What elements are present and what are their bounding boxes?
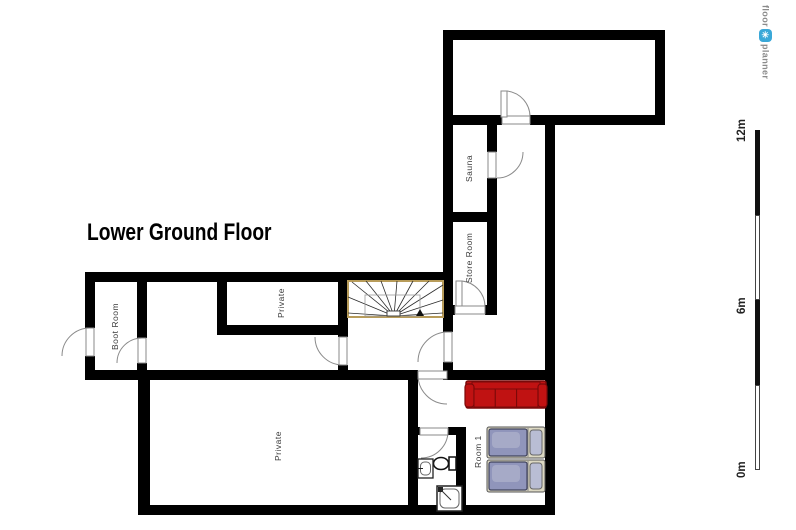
room-label-boot-room: Boot Room <box>110 296 122 356</box>
walls <box>85 30 665 515</box>
floorplanner-pinwheel-icon: ✳ <box>759 29 772 42</box>
room-label-private-upper: Private <box>276 278 288 328</box>
scale-label-0m: 0m <box>736 452 752 488</box>
bed-2 <box>487 460 545 492</box>
toilet <box>434 457 457 470</box>
room-label-store-room: Store Room <box>464 228 476 288</box>
door-sauna <box>497 152 523 178</box>
logo-word-floor: floor <box>761 5 771 27</box>
room-label-room-1: Room 1 <box>473 427 485 477</box>
floorplanner-logo: floor ✳ planner <box>759 5 772 79</box>
shower <box>437 486 462 511</box>
floor-title: Lower Ground Floor <box>87 219 272 247</box>
winder-staircase <box>348 281 443 317</box>
scale-label-6m: 6m <box>736 288 752 324</box>
door-top-room <box>501 91 530 117</box>
room-label-sauna: Sauna <box>464 143 476 193</box>
scale-segment <box>755 215 760 300</box>
scale-label-12m: 12m <box>736 112 752 148</box>
scale-segment <box>755 130 760 215</box>
sink <box>418 459 433 478</box>
scale-segment <box>755 300 760 385</box>
floorplan-page: Lower Ground Floor Boot Room Private Sau… <box>0 0 796 530</box>
logo-word-planner: planner <box>761 44 771 79</box>
room-label-private-lower: Private <box>273 416 285 476</box>
floorplan-drawing <box>0 0 796 530</box>
sofa <box>465 381 547 408</box>
scale-segment <box>755 385 760 470</box>
bed-1 <box>487 427 545 458</box>
